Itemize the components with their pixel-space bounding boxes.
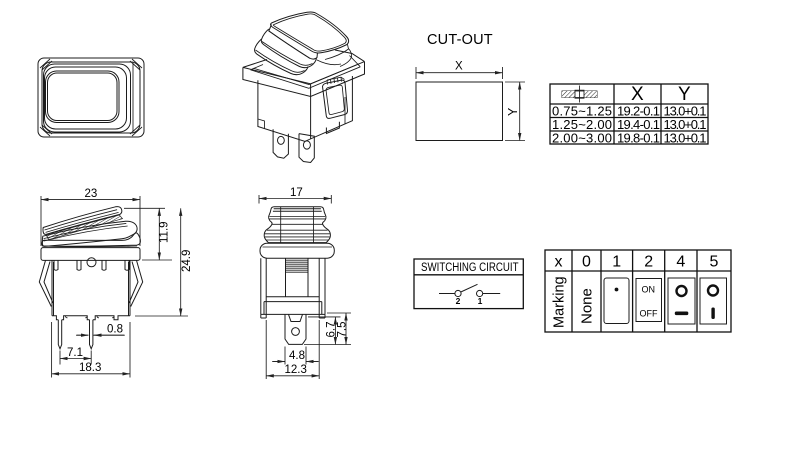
svg-text:19.8-0.1: 19.8-0.1	[617, 130, 660, 145]
svg-text:24.9: 24.9	[181, 250, 193, 272]
svg-text:4.8: 4.8	[289, 350, 305, 362]
svg-text:CUT-OUT: CUT-OUT	[427, 32, 493, 48]
svg-text:12.3: 12.3	[285, 364, 307, 376]
svg-text:2: 2	[644, 254, 653, 271]
svg-text:x: x	[555, 254, 563, 271]
svg-text:13.0+0.1: 13.0+0.1	[664, 130, 707, 145]
svg-text:1: 1	[478, 296, 483, 306]
svg-text:SWITCHING CIRCUIT: SWITCHING CIRCUIT	[421, 262, 519, 274]
svg-text:7.1: 7.1	[67, 347, 83, 359]
svg-text:None: None	[579, 288, 596, 324]
svg-text:11.9: 11.9	[159, 221, 171, 243]
svg-text:2: 2	[456, 296, 461, 306]
svg-text:ON: ON	[642, 285, 656, 295]
svg-text:1: 1	[612, 254, 621, 271]
svg-text:17: 17	[290, 187, 303, 199]
svg-text:Marking: Marking	[552, 276, 568, 328]
svg-text:5: 5	[710, 254, 719, 271]
svg-text:OFF: OFF	[640, 309, 658, 319]
svg-text:X: X	[631, 84, 644, 105]
svg-text:Y: Y	[678, 84, 691, 105]
svg-text:4: 4	[676, 254, 685, 271]
svg-text:23: 23	[85, 188, 98, 200]
svg-text:Y: Y	[506, 107, 520, 116]
svg-text:0.8: 0.8	[107, 324, 123, 336]
svg-text:18.3: 18.3	[79, 362, 101, 374]
svg-text:7.5: 7.5	[336, 322, 348, 338]
svg-text:2.00~3.00: 2.00~3.00	[552, 130, 612, 145]
svg-text:0: 0	[582, 254, 591, 271]
svg-text:X: X	[455, 61, 463, 73]
